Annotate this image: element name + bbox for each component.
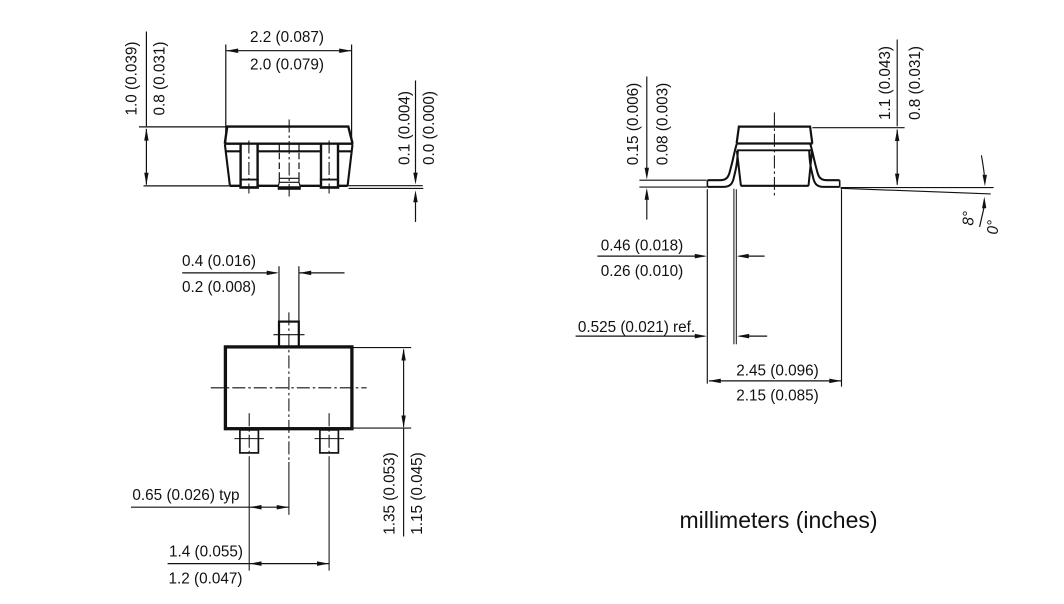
svg-text:0.8 (0.031): 0.8 (0.031) <box>907 46 924 120</box>
svg-text:2.45 (0.096): 2.45 (0.096) <box>736 363 819 380</box>
svg-text:0.2 (0.008): 0.2 (0.008) <box>182 279 256 296</box>
svg-text:0.8 (0.031): 0.8 (0.031) <box>152 42 169 116</box>
svg-text:0.4 (0.016): 0.4 (0.016) <box>182 253 256 270</box>
svg-text:0.525 (0.021) ref.: 0.525 (0.021) ref. <box>578 319 695 336</box>
svg-text:2.0 (0.079): 2.0 (0.079) <box>250 57 324 74</box>
svg-text:1.15 (0.045): 1.15 (0.045) <box>409 452 426 535</box>
svg-text:2.15 (0.085): 2.15 (0.085) <box>736 388 819 405</box>
svg-text:0.46 (0.018): 0.46 (0.018) <box>601 237 684 254</box>
svg-text:0.65 (0.026) typ: 0.65 (0.026) typ <box>132 487 239 504</box>
svg-text:8°: 8° <box>961 211 978 226</box>
svg-text:0.0 (0.000): 0.0 (0.000) <box>421 91 438 165</box>
svg-text:0.08 (0.003): 0.08 (0.003) <box>655 83 672 166</box>
svg-text:1.2 (0.047): 1.2 (0.047) <box>169 571 243 588</box>
svg-text:1.0 (0.039): 1.0 (0.039) <box>124 42 141 116</box>
svg-text:2.2 (0.087): 2.2 (0.087) <box>250 29 324 46</box>
svg-text:1.35 (0.053): 1.35 (0.053) <box>381 452 398 535</box>
svg-text:0.1 (0.004): 0.1 (0.004) <box>397 91 414 165</box>
svg-text:millimeters (inches): millimeters (inches) <box>679 507 877 533</box>
svg-text:0.15 (0.006): 0.15 (0.006) <box>625 83 642 166</box>
svg-text:1.1 (0.043): 1.1 (0.043) <box>877 46 894 120</box>
svg-text:0°: 0° <box>985 220 1002 235</box>
svg-text:1.4 (0.055): 1.4 (0.055) <box>169 544 243 561</box>
svg-text:0.26 (0.010): 0.26 (0.010) <box>601 263 684 280</box>
